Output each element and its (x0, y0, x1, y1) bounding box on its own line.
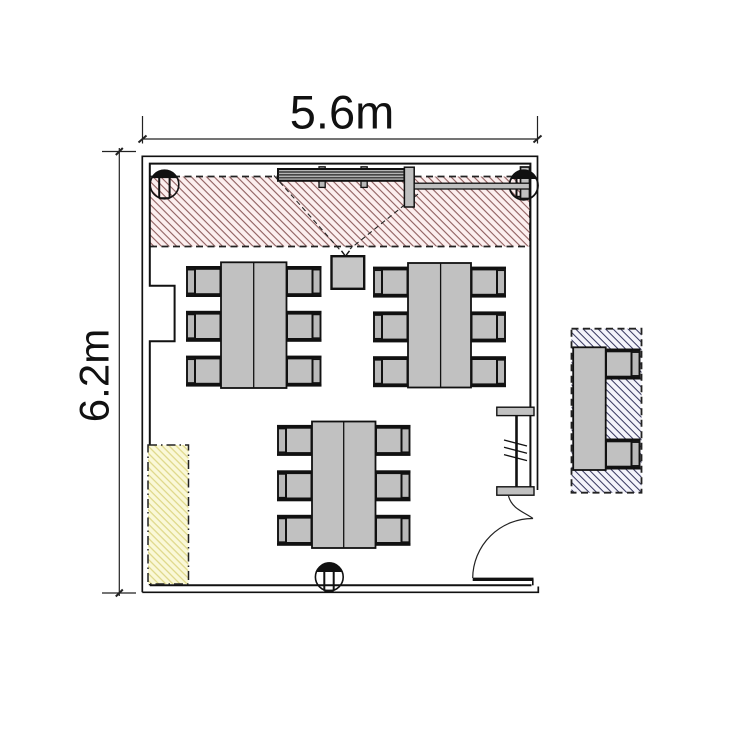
svg-text:6.2m: 6.2m (71, 329, 118, 422)
svg-text:5.6m: 5.6m (290, 86, 395, 139)
